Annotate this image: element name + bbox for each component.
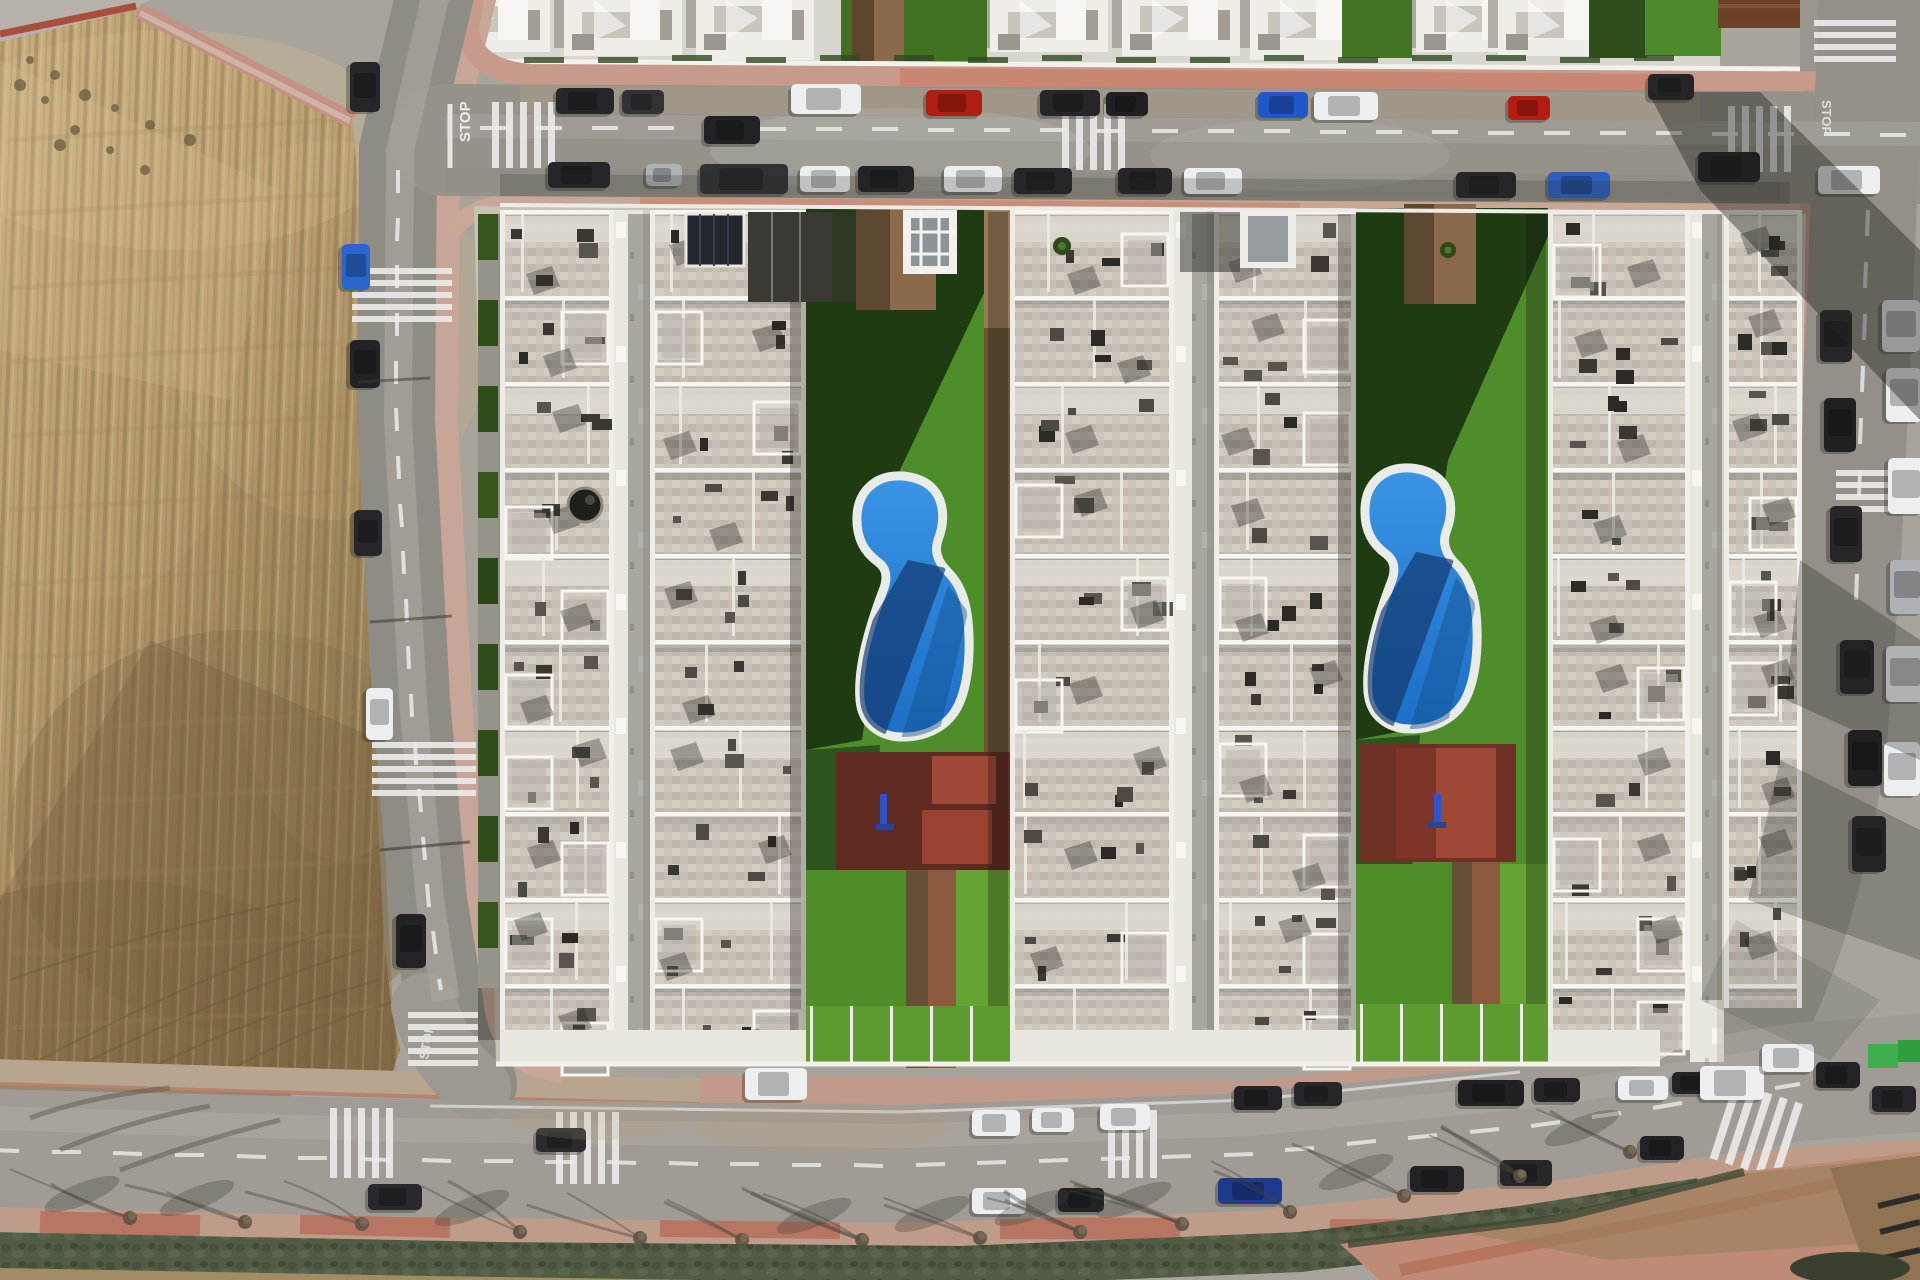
svg-text:STOP: STOP (1819, 100, 1834, 135)
svg-text:STOP: STOP (457, 101, 474, 142)
